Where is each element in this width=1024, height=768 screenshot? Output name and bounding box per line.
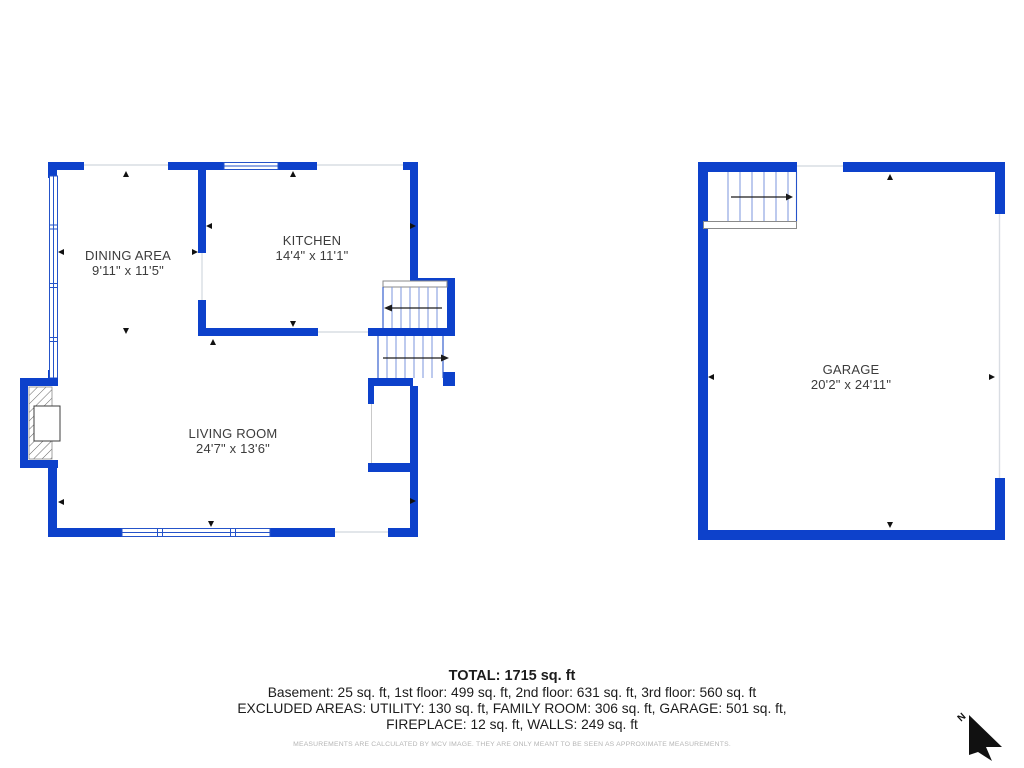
stair-treads xyxy=(378,336,443,378)
wall-segment xyxy=(20,378,28,468)
wall-segment xyxy=(410,162,418,278)
room-label-garage: GARAGE 20'2" x 24'11" xyxy=(811,362,891,392)
wall-segment xyxy=(698,162,708,540)
firebox xyxy=(34,406,60,441)
wall-segment xyxy=(278,162,317,170)
windows xyxy=(50,163,279,537)
window xyxy=(50,176,58,378)
wall-segment xyxy=(368,463,410,472)
area-summary: TOTAL: 1715 sq. ft Basement: 25 sq. ft, … xyxy=(0,668,1024,749)
wall-segment xyxy=(198,328,318,336)
wall-segment xyxy=(48,528,122,537)
wall-segment xyxy=(198,170,206,253)
walls xyxy=(698,162,1005,540)
fireplace xyxy=(20,378,60,468)
excluded-areas-line1: EXCLUDED AREAS: UTILITY: 130 sq. ft, FAM… xyxy=(0,701,1024,717)
room-name: DINING AREA xyxy=(85,248,171,263)
measurement-disclaimer: MEASUREMENTS ARE CALCULATED BY MCV IMAGE… xyxy=(0,740,1024,749)
wall-segment xyxy=(843,162,1005,172)
wall-segment xyxy=(168,162,224,170)
wall-segment xyxy=(368,386,374,404)
garage-staircase xyxy=(704,172,797,229)
floors-areas: Basement: 25 sq. ft, 1st floor: 499 sq. … xyxy=(0,685,1024,701)
wall-segment xyxy=(20,460,58,468)
wall-segment xyxy=(48,468,57,536)
stair-landing xyxy=(383,281,447,287)
room-label-dining: DINING AREA 9'11" x 11'5" xyxy=(85,248,171,278)
stair-landing xyxy=(704,222,797,229)
stair-arrowhead xyxy=(786,194,793,201)
dimension-ticks xyxy=(58,171,416,527)
excluded-areas-line2: FIREPLACE: 12 sq. ft, WALLS: 249 sq. ft xyxy=(0,717,1024,733)
room-label-living: LIVING ROOM 24'7" x 13'6" xyxy=(189,426,278,456)
first-floor-plan xyxy=(20,162,455,537)
floorplan-page: N DINING AREA 9'11" x 11'5" KITCHEN 14'4… xyxy=(0,0,1024,768)
window xyxy=(122,529,270,537)
wall-segment xyxy=(368,378,413,386)
walls xyxy=(48,162,418,537)
room-name: GARAGE xyxy=(811,362,891,377)
stair-arrowhead xyxy=(384,305,392,312)
garage-plan xyxy=(698,162,1005,540)
room-name: LIVING ROOM xyxy=(189,426,278,441)
window xyxy=(224,163,278,170)
wall-segment xyxy=(368,328,455,336)
room-dims: 24'7" x 13'6" xyxy=(189,441,278,456)
room-label-kitchen: KITCHEN 14'4" x 11'1" xyxy=(276,233,349,263)
room-name: KITCHEN xyxy=(276,233,349,248)
wall-segment xyxy=(698,530,1005,540)
room-dims: 9'11" x 11'5" xyxy=(85,263,171,278)
room-dims: 20'2" x 24'11" xyxy=(811,377,891,392)
stair-arrowhead xyxy=(441,355,449,362)
total-area: TOTAL: 1715 sq. ft xyxy=(0,668,1024,685)
wall-segment xyxy=(698,162,797,172)
door-openings xyxy=(797,166,1000,478)
wall-segment xyxy=(410,386,418,536)
wall-segment xyxy=(995,162,1005,214)
room-dims: 14'4" x 11'1" xyxy=(276,248,349,263)
wall-segment xyxy=(270,528,335,537)
door-openings xyxy=(84,165,403,532)
wall-segment xyxy=(443,372,455,386)
